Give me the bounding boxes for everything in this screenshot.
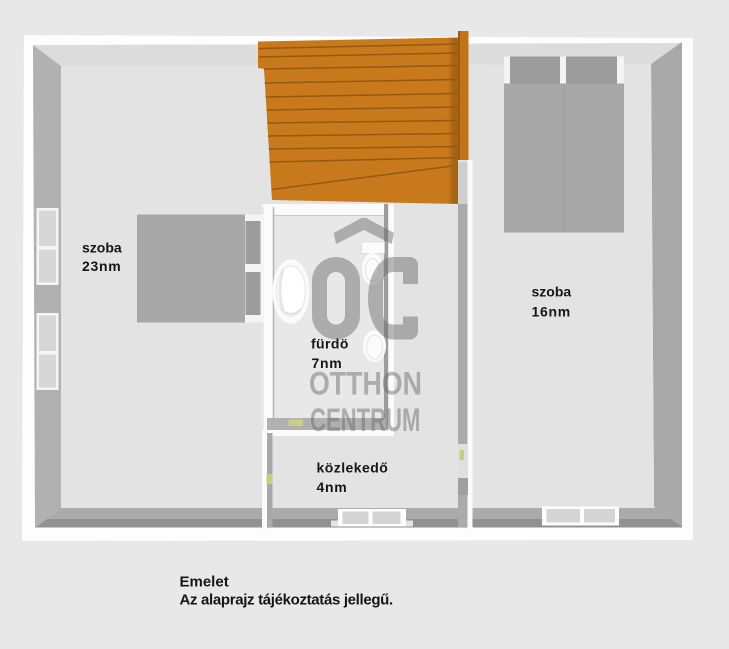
svg-text:CENTRUM: CENTRUM <box>310 402 420 438</box>
svg-text:fürdö: fürdö <box>311 335 349 351</box>
svg-text:Az alaprajz tájékoztatás jelle: Az alaprajz tájékoztatás jellegű. <box>180 591 394 608</box>
svg-text:Emelet: Emelet <box>180 573 229 590</box>
svg-text:7nm: 7nm <box>312 355 343 371</box>
svg-text:OTTHON: OTTHON <box>309 366 422 402</box>
svg-text:közlekedő: közlekedő <box>317 460 389 476</box>
svg-text:szoba: szoba <box>532 284 572 300</box>
svg-text:23nm: 23nm <box>82 258 121 274</box>
svg-text:16nm: 16nm <box>532 304 571 320</box>
svg-text:4nm: 4nm <box>317 479 348 495</box>
svg-text:szoba: szoba <box>82 239 122 255</box>
